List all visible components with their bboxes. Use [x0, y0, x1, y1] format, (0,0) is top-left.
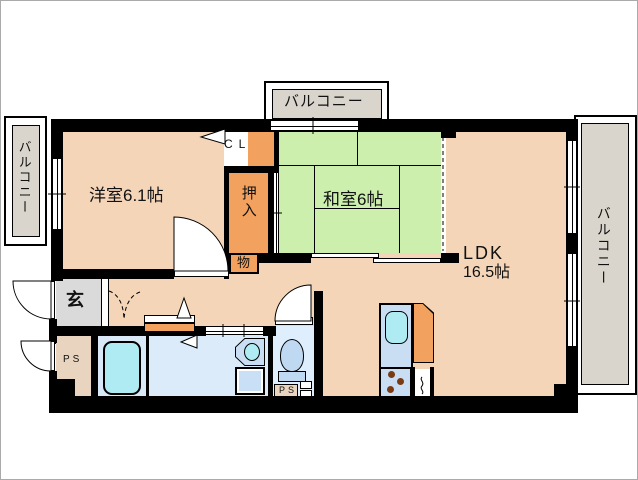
washroom-door: [206, 326, 263, 335]
balcony-right-label: バルコニー: [596, 206, 611, 286]
oshiire-sliding-door: [273, 173, 279, 253]
wall-segment: [224, 166, 279, 173]
balcony-top-label: バルコニー: [284, 94, 364, 110]
japanese-room-sliding-door-leaf: [311, 253, 379, 258]
kitchen-stove: [379, 367, 413, 398]
tatami-line: [279, 165, 441, 166]
japanese-room-sliding-door-leaf: [373, 258, 441, 263]
window-north-japanese-room: [271, 119, 358, 132]
floor-plan: バルコニー バルコニー バルコニー: [0, 0, 638, 480]
western-room-door-leaf: [174, 269, 229, 277]
toilet-door-leaf: [275, 317, 313, 325]
oshiire-label: 押入: [240, 185, 256, 219]
entrance-label: 玄: [66, 291, 84, 310]
bathtub: [103, 341, 141, 395]
shelf-strip-white: [144, 315, 195, 323]
wall-segment: [566, 119, 578, 141]
wall-segment: [566, 346, 578, 413]
refrigerator-space: [414, 304, 433, 362]
japanese-ldk-boundary: [441, 132, 446, 253]
wall-segment: [274, 132, 279, 166]
pipe-space-left-label: PS: [63, 355, 82, 366]
tatami-line: [357, 132, 358, 165]
pipe-space-toilet-label: PS: [279, 386, 297, 395]
wall-segment: [51, 119, 271, 132]
pipe-space-door-leaf: [47, 341, 55, 371]
entrance-door-leaf: [47, 281, 55, 319]
wall-segment: [51, 119, 63, 159]
closet-cl: [248, 132, 274, 166]
kitchen-sink: [385, 311, 408, 344]
entrance-door-arc: [13, 281, 51, 319]
genkan-step: [101, 279, 109, 326]
ldk-label-line1: LDK: [463, 244, 504, 263]
wall-segment: [314, 291, 323, 399]
stove-burner: [388, 371, 395, 378]
stove-burner: [387, 386, 394, 393]
washbasin-bowl: [244, 343, 260, 361]
wall-segment: [146, 334, 149, 399]
washing-machine: [235, 367, 265, 395]
closet-label: CL: [224, 138, 251, 151]
japanese-room-label: 和室6帖: [323, 191, 383, 209]
window-east-lower: [566, 254, 578, 346]
wall-segment: [268, 334, 273, 399]
wall-segment: [259, 253, 311, 263]
stove-burner: [397, 378, 404, 385]
wall-segment: [358, 119, 578, 132]
wall-segment: [441, 253, 459, 263]
wall-segment: [224, 166, 229, 279]
toilet-side-shelf: [300, 381, 312, 389]
tatami-line: [399, 165, 400, 253]
shelf-strip-orange: [144, 323, 195, 332]
kitchen-door-post: [430, 367, 434, 398]
wall-segment: [441, 132, 456, 138]
storage-label: 物: [237, 256, 250, 270]
western-room-label: 洋室6.1帖: [89, 187, 164, 205]
balcony-left-label: バルコニー: [17, 140, 31, 215]
kitchen-door-opening: [415, 369, 430, 398]
corridor: [108, 253, 314, 326]
toilet-bowl: [280, 339, 304, 372]
wall-segment: [91, 334, 98, 399]
ldk-label-line2: 16.5帖: [463, 265, 510, 282]
window-east-upper: [566, 141, 578, 233]
window-west: [51, 159, 63, 229]
wall-segment: [63, 269, 174, 279]
tatami-line: [314, 165, 315, 253]
wall-segment: [566, 233, 578, 254]
wall-segment: [51, 229, 63, 281]
ldk-passage: [314, 253, 323, 291]
